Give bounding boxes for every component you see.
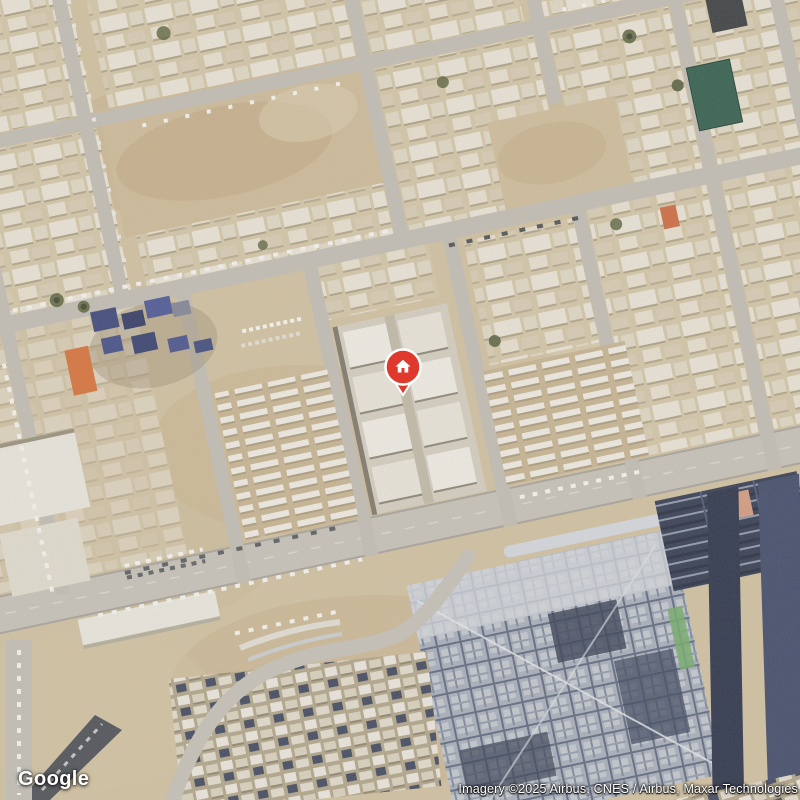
google-logo[interactable]: Google: [18, 768, 89, 791]
imagery-attribution: Imagery ©2025 Airbus, CNES / Airbus, Max…: [458, 782, 798, 796]
place-marker-home[interactable]: [381, 347, 425, 405]
map-canvas[interactable]: Google Imagery ©2025 Airbus, CNES / Airb…: [0, 0, 800, 800]
